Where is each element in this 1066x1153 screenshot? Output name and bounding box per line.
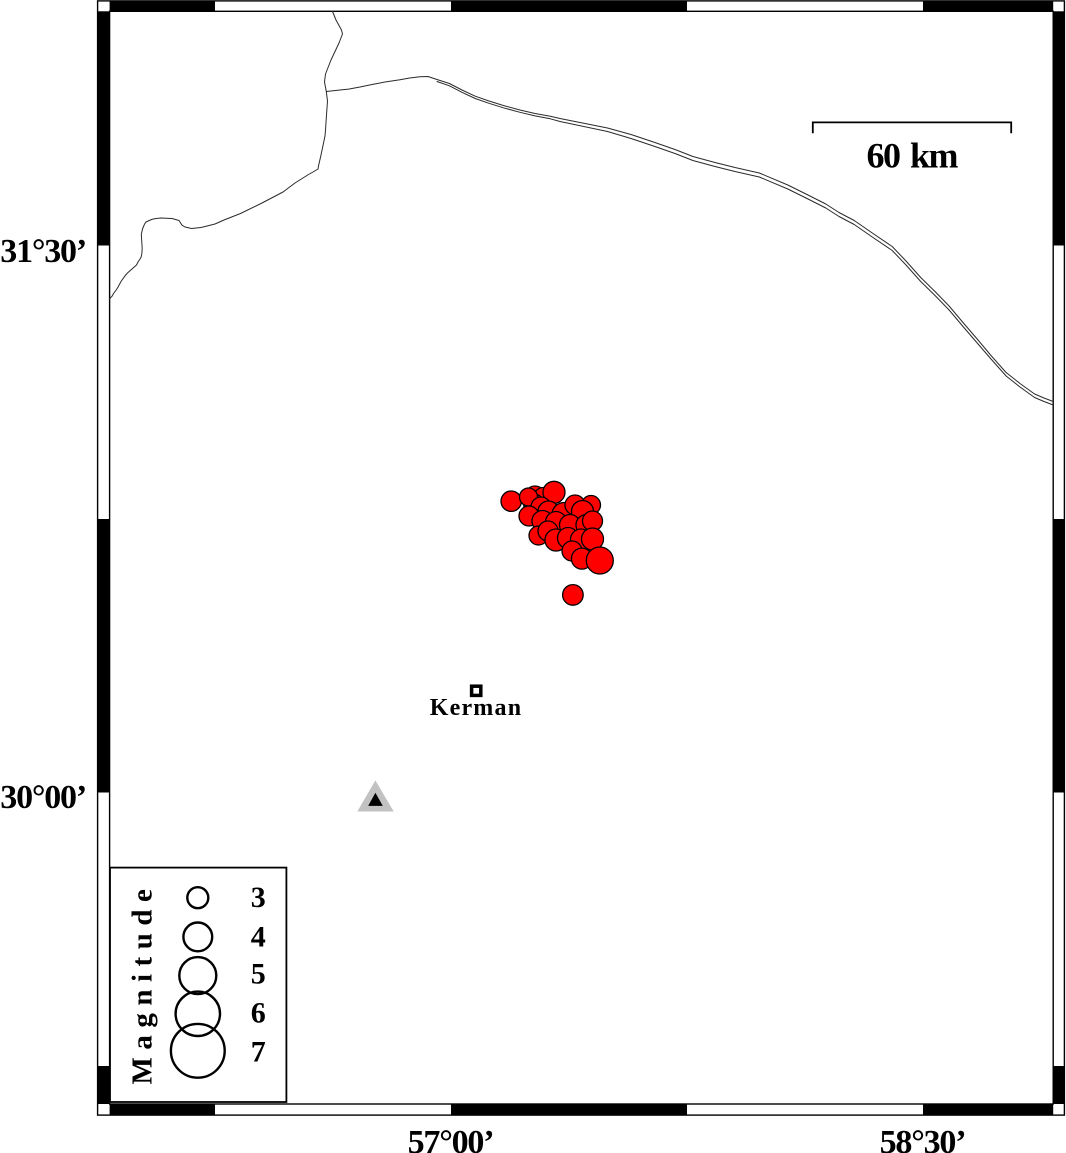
svg-text:6: 6	[251, 997, 266, 1030]
svg-text:58°30’: 58°30’	[880, 1124, 966, 1153]
svg-text:Kerman: Kerman	[430, 695, 523, 721]
svg-text:60 km: 60 km	[866, 136, 958, 176]
svg-text:4: 4	[251, 920, 266, 953]
svg-text:31°30’: 31°30’	[0, 233, 86, 270]
svg-text:57°00’: 57°00’	[408, 1124, 494, 1153]
svg-text:3: 3	[251, 881, 266, 914]
svg-text:7: 7	[251, 1036, 266, 1069]
svg-text:5: 5	[251, 957, 266, 990]
svg-text:Magnitude: Magnitude	[127, 882, 159, 1085]
svg-text:30°00’: 30°00’	[0, 779, 86, 816]
